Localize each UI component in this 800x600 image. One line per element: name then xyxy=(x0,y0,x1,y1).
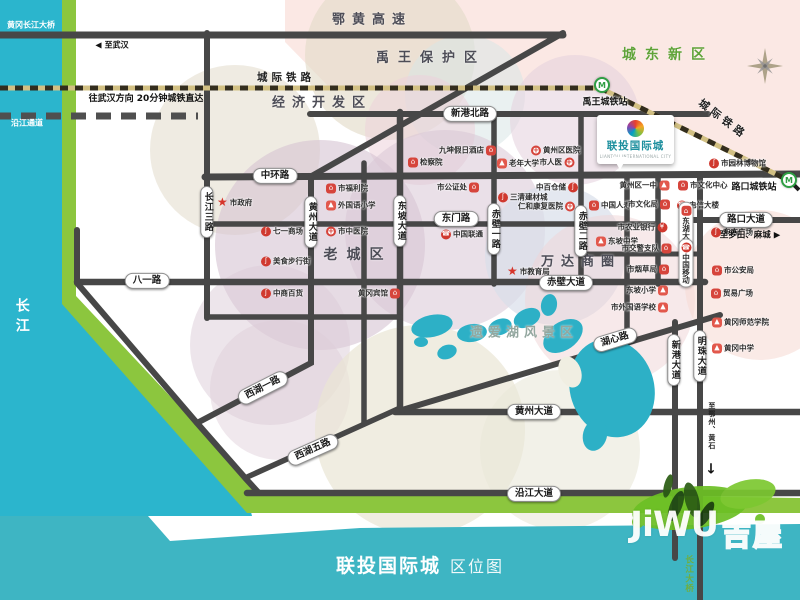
note-to-ezhou-huangshi: 至鄂州、黄石 xyxy=(707,402,715,450)
poi-marker: 市外国语学校▲ xyxy=(611,302,668,313)
note-south-arrow: ↓ xyxy=(705,462,717,477)
mall-icon: ʃ xyxy=(498,192,508,202)
building-icon: ⌂ xyxy=(678,180,688,190)
project-logo-icon xyxy=(627,120,644,137)
poi-label: 市公安局 xyxy=(724,265,754,276)
poi-marker: ☎中国联通 xyxy=(441,229,483,240)
poi-marker: 黄州区一中▲ xyxy=(620,180,670,191)
poi-marker: 市人医+ xyxy=(540,157,575,168)
poi-marker: 市文化局⌂ xyxy=(628,199,670,210)
poi-marker: ⌂检察院 xyxy=(408,157,443,168)
poi-marker: ▲外国语小学 xyxy=(326,200,376,211)
poi-label: 检察院 xyxy=(420,157,443,168)
poi-label: 黄州区一中 xyxy=(620,180,658,191)
zone-label: 经济开发区 xyxy=(272,92,372,111)
poi-label: 市烟草局 xyxy=(627,264,657,275)
poi-marker: ʃ美食步行街 xyxy=(261,256,311,267)
poi-marker: +市中医院 xyxy=(326,226,368,237)
project-callout: 联投国际城 LIANTOU INTERNATIONAL CITY xyxy=(597,115,674,164)
road-label: 明珠大道 xyxy=(693,330,706,382)
road-label: 中环路 xyxy=(253,168,298,184)
arrow-icon: ▶ xyxy=(774,231,781,240)
cross-icon: + xyxy=(531,145,541,155)
note-text: 长江 xyxy=(13,298,28,338)
poi-marker: 黄冈宾馆⌂ xyxy=(358,288,400,299)
road-label: 路口大道 xyxy=(719,212,773,228)
mall-icon: ʃ xyxy=(709,158,719,168)
project-tagline: LIANTOU INTERNATIONAL CITY xyxy=(600,154,672,159)
road-label: 东门路 xyxy=(434,211,479,227)
poi-label: 中百仓储 xyxy=(536,182,566,193)
road-label: 黄州大道 xyxy=(507,404,561,420)
school-icon: ▲ xyxy=(658,302,668,312)
poi-label: 市农业银行 xyxy=(618,222,656,233)
road-label: 赤壁二路 xyxy=(574,205,587,257)
poi-label: 市园林博物馆 xyxy=(721,158,766,169)
building-icon: ⌂ xyxy=(659,264,669,274)
poi-label: 市文化中心 xyxy=(690,180,728,191)
poi-marker: ▲老年大学 xyxy=(497,158,539,169)
poi-marker: ▲黄冈中学 xyxy=(712,343,754,354)
poi-label: 中商百货 xyxy=(273,288,303,299)
poi-label: 九坤假日酒店 xyxy=(439,145,484,156)
road-label: 黄州大道 xyxy=(304,196,317,248)
poi-marker: 市农业银行¥ xyxy=(618,222,668,233)
building-icon: ⌂ xyxy=(469,182,479,192)
note-rail-note: 往武汉方向 20分钟城铁直达 xyxy=(89,95,204,105)
note-text: 长江大桥 xyxy=(683,555,692,593)
zone-label: 城东新区 xyxy=(622,44,714,64)
poi-label: 美食步行街 xyxy=(273,256,311,267)
building-icon: ⌂ xyxy=(660,199,670,209)
note-text: 沿江通道 xyxy=(11,120,43,129)
poi-label: 市公证处 xyxy=(437,182,467,193)
mall-icon: ʃ xyxy=(568,182,578,192)
map-title-project: 联投国际城 xyxy=(336,551,441,578)
poi-label: 电信大楼 xyxy=(689,200,719,211)
map-title-doc: 区位图 xyxy=(450,553,504,577)
note-riverside-tunnel: 沿江通道 xyxy=(11,120,43,129)
poi-label: 市外国语学校 xyxy=(611,302,656,313)
note-to-luotian-macheng: 至罗田、麻城▶ xyxy=(720,231,781,240)
watermark-cjk: 吉屋 xyxy=(722,512,784,554)
poi-marker: ☎中国移动 xyxy=(679,239,694,288)
note-bridge-south: 长江大桥 xyxy=(683,555,692,593)
road-label: 赤壁一路 xyxy=(487,203,500,255)
metro-station-label: 路口城铁站 xyxy=(731,180,776,193)
road-label: 长江三路 xyxy=(200,186,213,238)
watermark-latin: JiWU xyxy=(630,505,718,545)
road-label: 沿江大道 xyxy=(507,486,561,502)
road-label: 东坡大道 xyxy=(393,195,406,247)
note-text: 至鄂州、黄石 xyxy=(707,402,715,450)
poi-marker: ʃ市园林博物馆 xyxy=(709,158,766,169)
poi-label: 黄州区医院 xyxy=(543,145,581,156)
poi-marker: 东坡小学▲ xyxy=(626,285,668,296)
poi-label: 中国移动 xyxy=(681,254,692,284)
poi-marker: 仁和康复医院+ xyxy=(518,201,575,212)
building-icon: ⌂ xyxy=(390,288,400,298)
poi-label: 黄冈宾馆 xyxy=(358,288,388,299)
school-icon: ▲ xyxy=(659,180,669,190)
bank-icon: ¥ xyxy=(657,222,667,232)
telecom-icon: ☎ xyxy=(441,229,451,239)
school-icon: ▲ xyxy=(497,158,507,168)
building-icon: ⌂ xyxy=(681,206,691,216)
metro-station-icon: M xyxy=(781,172,797,188)
poi-label: 市交警支队 xyxy=(622,243,660,254)
poi-label: 老年大学 xyxy=(509,158,539,169)
poi-marker: ⌂市公安局 xyxy=(712,265,754,276)
poi-label: 市福利院 xyxy=(338,183,368,194)
arrow-icon: ◀ xyxy=(95,42,101,51)
building-icon: ⌂ xyxy=(589,200,599,210)
poi-marker: 市交警支队⌂ xyxy=(622,243,672,254)
star-icon: ★ xyxy=(217,196,228,208)
star-icon: ★ xyxy=(507,265,518,277)
poi-label: 市中医院 xyxy=(338,226,368,237)
building-icon: ⌂ xyxy=(711,288,721,298)
school-icon: ▲ xyxy=(712,317,722,327)
poi-marker: 九坤假日酒店⌂ xyxy=(439,145,496,156)
cross-icon: + xyxy=(564,157,574,167)
railway-label: 城际铁路 xyxy=(257,70,315,85)
poi-label: 外国语小学 xyxy=(338,200,376,211)
cross-icon: + xyxy=(326,226,336,236)
road-label: 新港大道 xyxy=(667,334,680,386)
poi-label: 七一商场 xyxy=(273,226,303,237)
zone-label: 老城区 xyxy=(324,244,393,264)
zone-label: 禹王保护区 xyxy=(376,47,486,66)
poi-marker: ⌂贸易广场 xyxy=(711,288,753,299)
school-icon: ▲ xyxy=(326,200,336,210)
school-icon: ▲ xyxy=(712,343,722,353)
poi-label: 中国联通 xyxy=(453,229,483,240)
school-icon: ▲ xyxy=(596,236,606,246)
building-icon: ⌂ xyxy=(661,243,671,253)
note-text: 至武汉 xyxy=(105,42,129,51)
poi-marker: ▲黄冈师范学院 xyxy=(712,317,769,328)
poi-label: 仁和康复医院 xyxy=(518,201,563,212)
poi-marker: 市烟草局⌂ xyxy=(627,264,669,275)
building-icon: ⌂ xyxy=(408,157,418,167)
zone-label: 鄂黄高速 xyxy=(332,9,412,28)
mall-icon: ʃ xyxy=(261,226,271,236)
poi-label: 市人医 xyxy=(540,157,563,168)
poi-label: 中国人寿 xyxy=(601,200,631,211)
poi-label: 黄冈中学 xyxy=(724,343,754,354)
poi-label: 东坡小学 xyxy=(626,285,656,296)
poi-label: 市文化局 xyxy=(628,199,658,210)
note-yangtze-river: 长江 xyxy=(13,298,28,338)
metro-station-icon: M xyxy=(594,77,610,93)
note-to-wuhan: ◀至武汉 xyxy=(95,42,128,51)
zone-label: 遗爱湖风景区 xyxy=(470,322,578,341)
map-root: 联投国际城 LIANTOU INTERNATIONAL CITY 联投国际城 区… xyxy=(0,0,800,600)
telecom-icon: ☎ xyxy=(681,243,691,253)
building-icon: ⌂ xyxy=(486,145,496,155)
mall-icon: ʃ xyxy=(261,288,271,298)
road-label: 八一路 xyxy=(125,273,170,289)
poi-marker: +黄州区医院 xyxy=(531,145,581,156)
note-text: 往武汉方向 20分钟城铁直达 xyxy=(89,95,204,105)
poi-label: 市政府 xyxy=(230,197,253,208)
poi-marker: ⌂中国人寿 xyxy=(589,200,631,211)
metro-station-label: 禹王城铁站 xyxy=(582,95,627,108)
poi-marker: 中百仓储ʃ xyxy=(536,182,578,193)
poi-marker: ⌂市福利院 xyxy=(326,183,368,194)
poi-marker: ⌂市文化中心 xyxy=(678,180,728,191)
poi-label: 贸易广场 xyxy=(723,288,753,299)
poi-marker: ★市政府 xyxy=(217,196,252,208)
poi-marker: ʃ七一商场 xyxy=(261,226,303,237)
project-name: 联投国际城 xyxy=(607,138,665,153)
road-label: 赤壁大道 xyxy=(539,275,593,291)
poi-label: 黄冈师范学院 xyxy=(724,317,769,328)
poi-marker: ʃ中商百货 xyxy=(261,288,303,299)
note-text: ↓ xyxy=(705,462,717,477)
note-bridge-northwest: 黄冈长江大桥 xyxy=(7,22,55,31)
map-title: 联投国际城 区位图 xyxy=(336,551,504,578)
poi-marker: 市公证处⌂ xyxy=(437,182,479,193)
building-icon: ⌂ xyxy=(326,183,336,193)
mall-icon: ʃ xyxy=(261,256,271,266)
school-icon: ▲ xyxy=(658,285,668,295)
building-icon: ⌂ xyxy=(712,265,722,275)
road-label: 新港北路 xyxy=(443,106,497,122)
note-text: 至罗田、麻城 xyxy=(720,231,771,240)
note-text: 黄冈长江大桥 xyxy=(7,22,55,31)
